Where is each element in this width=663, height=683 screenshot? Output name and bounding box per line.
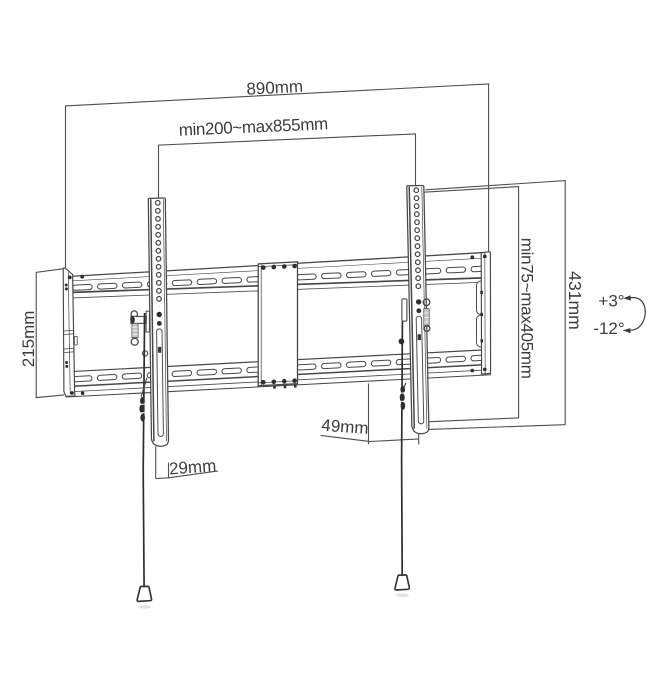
svg-text:min75~max405mm: min75~max405mm <box>518 238 537 379</box>
svg-text:+3°: +3° <box>598 291 624 310</box>
svg-text:min200~max855mm: min200~max855mm <box>178 114 328 139</box>
svg-text:890mm: 890mm <box>246 77 304 99</box>
svg-text:29mm: 29mm <box>168 456 216 478</box>
svg-text:431mm: 431mm <box>565 271 585 330</box>
svg-text:-12°: -12° <box>593 319 624 338</box>
svg-text:49mm: 49mm <box>321 416 369 438</box>
svg-text:215mm: 215mm <box>19 311 38 368</box>
